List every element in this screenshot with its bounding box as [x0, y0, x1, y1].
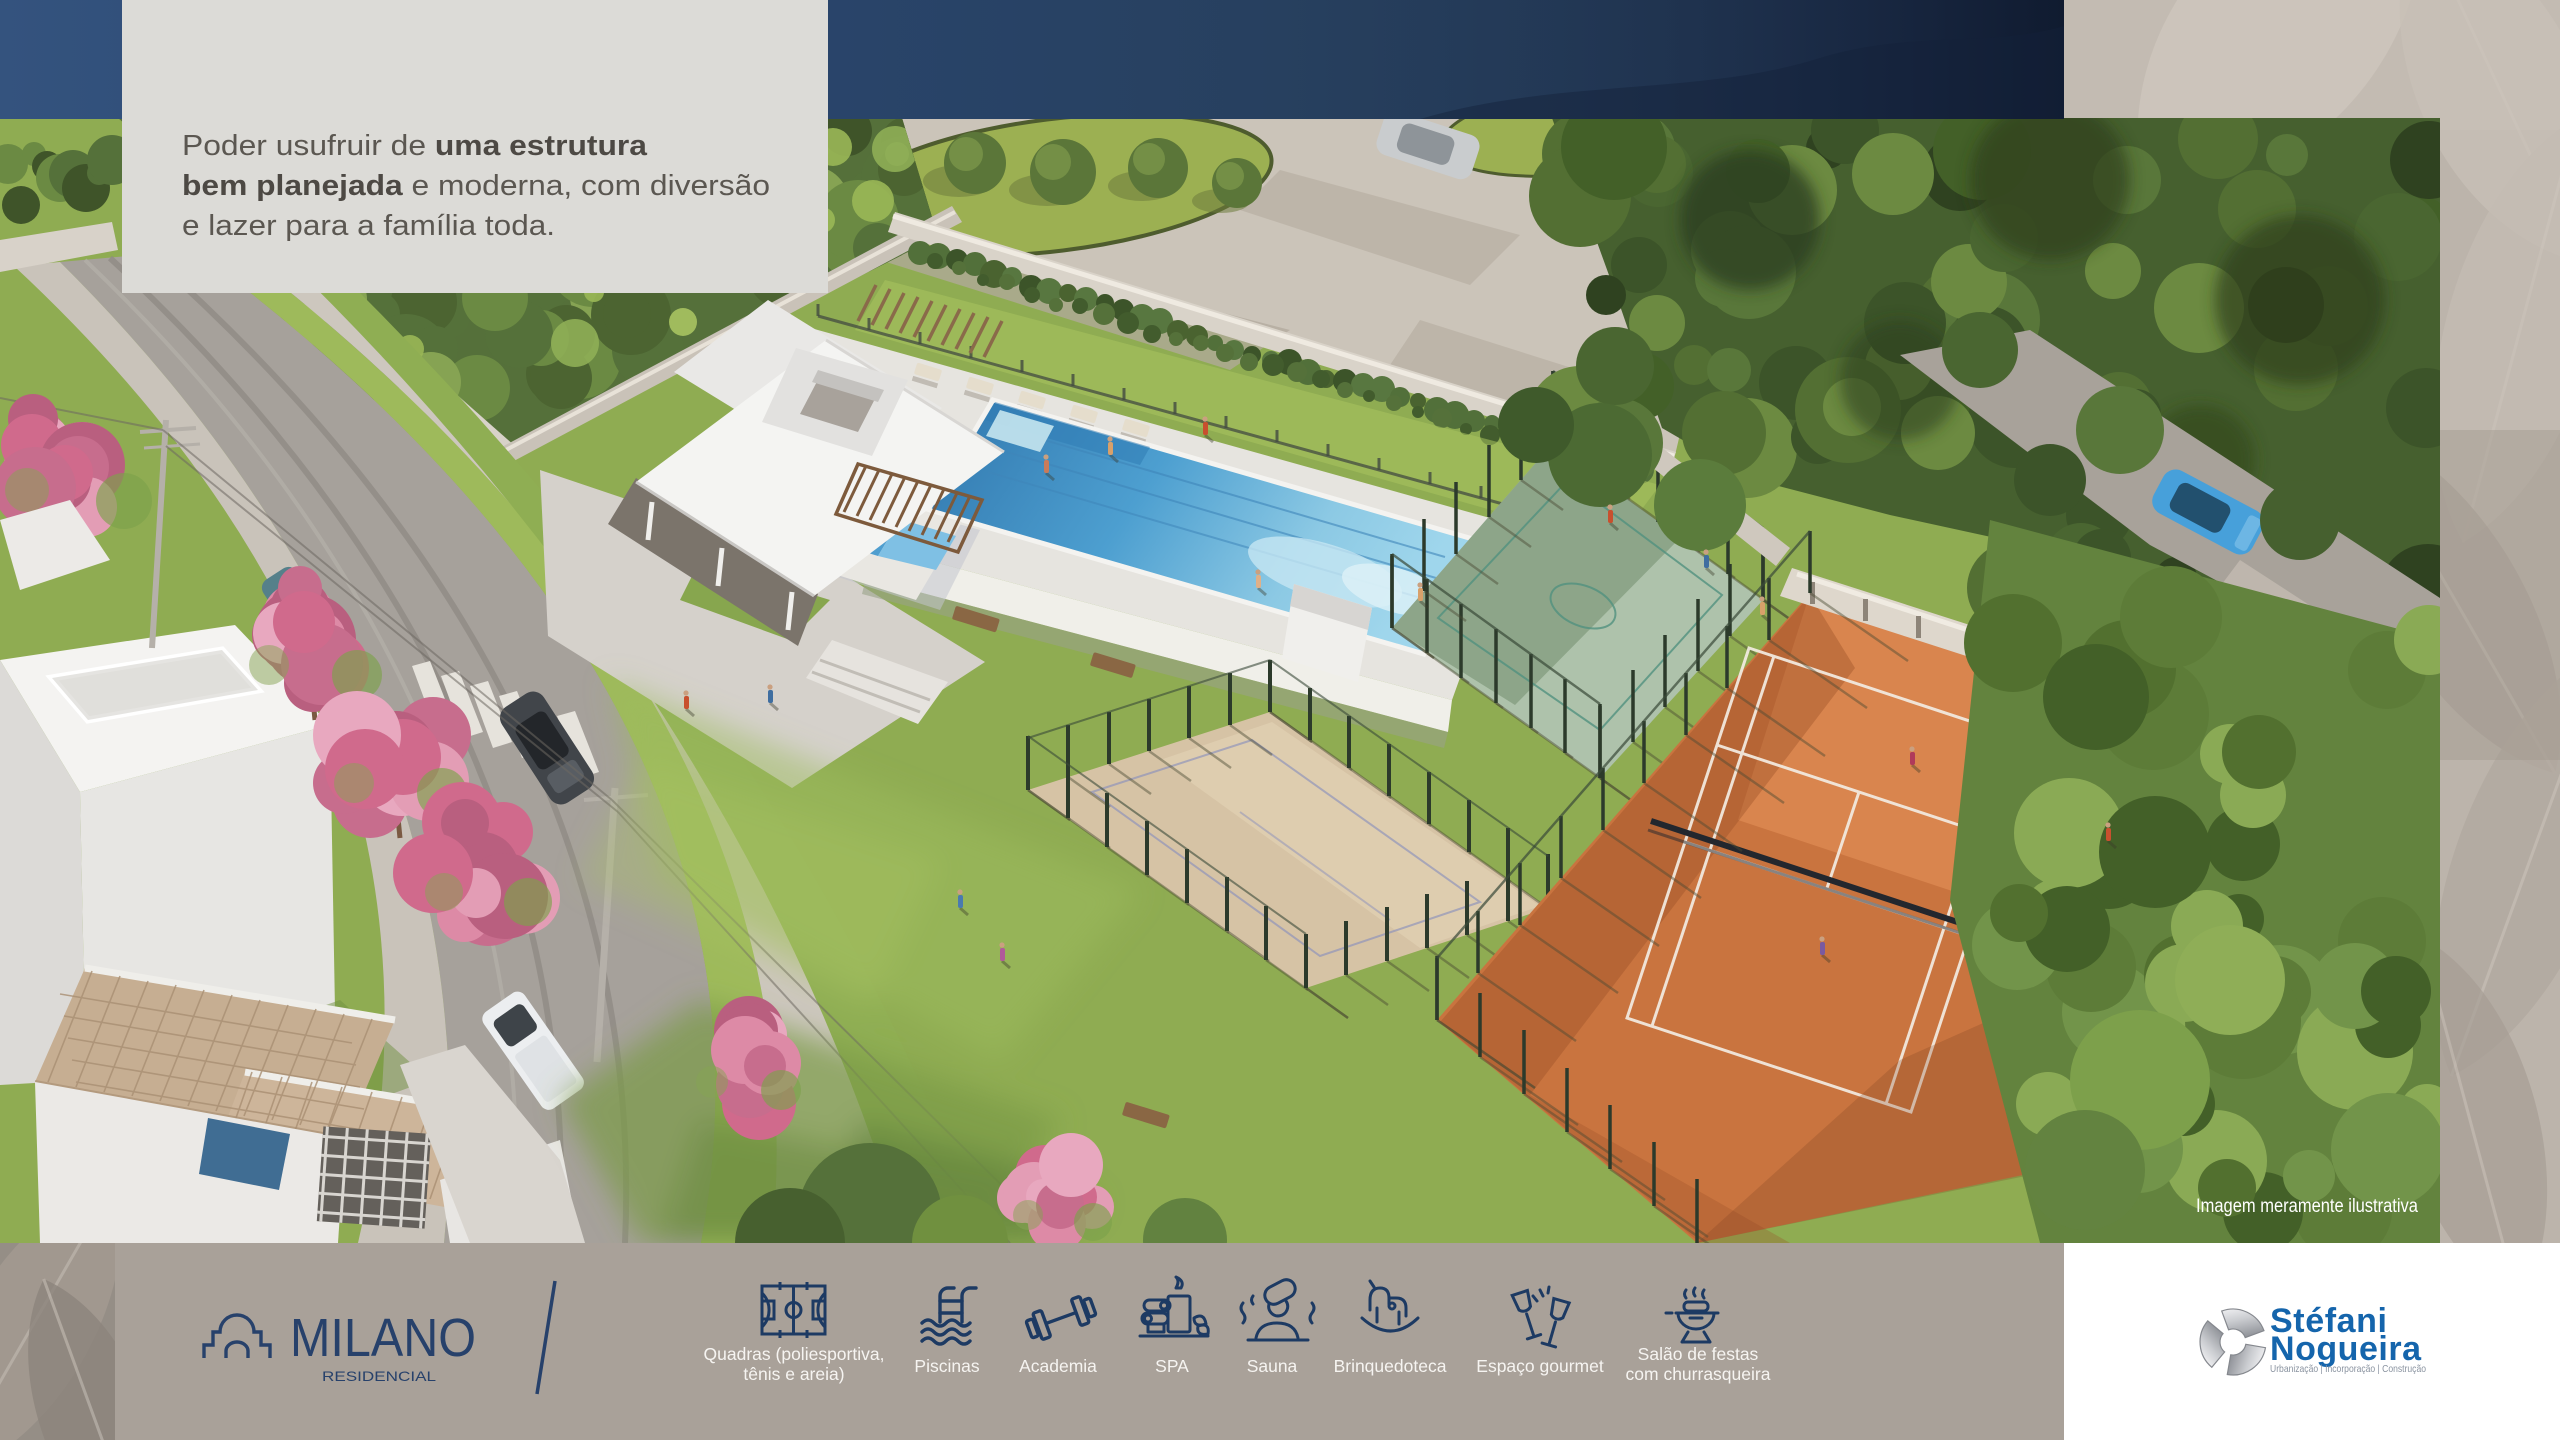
svg-text:bem planejada e moderna, com d: bem planejada e moderna, com diversão — [182, 170, 770, 202]
svg-text:Quadras (poliesportiva,: Quadras (poliesportiva, — [704, 1344, 885, 1364]
svg-text:MILANO: MILANO — [290, 1308, 476, 1368]
svg-text:Academia: Academia — [1019, 1356, 1097, 1376]
svg-text:com churrasqueira: com churrasqueira — [1626, 1364, 1771, 1384]
svg-text:Espaço gourmet: Espaço gourmet — [1476, 1356, 1604, 1376]
svg-text:e lazer para a família toda.: e lazer para a família toda. — [182, 210, 555, 242]
svg-text:SPA: SPA — [1155, 1356, 1189, 1376]
svg-text:Piscinas: Piscinas — [914, 1356, 979, 1376]
svg-text:Imagem meramente ilustrativa: Imagem meramente ilustrativa — [2196, 1196, 2418, 1217]
svg-text:Poder usufruir de uma estrutur: Poder usufruir de uma estrutura — [182, 130, 648, 162]
svg-text:tênis e areia): tênis e areia) — [743, 1364, 844, 1384]
svg-text:Salão de festas: Salão de festas — [1638, 1344, 1759, 1364]
svg-text:Urbanização | Incorporação | C: Urbanização | Incorporação | Construção — [2270, 1363, 2426, 1375]
svg-text:Sauna: Sauna — [1247, 1356, 1298, 1376]
svg-text:RESIDENCIAL: RESIDENCIAL — [322, 1368, 436, 1384]
svg-text:Brinquedoteca: Brinquedoteca — [1334, 1356, 1447, 1376]
